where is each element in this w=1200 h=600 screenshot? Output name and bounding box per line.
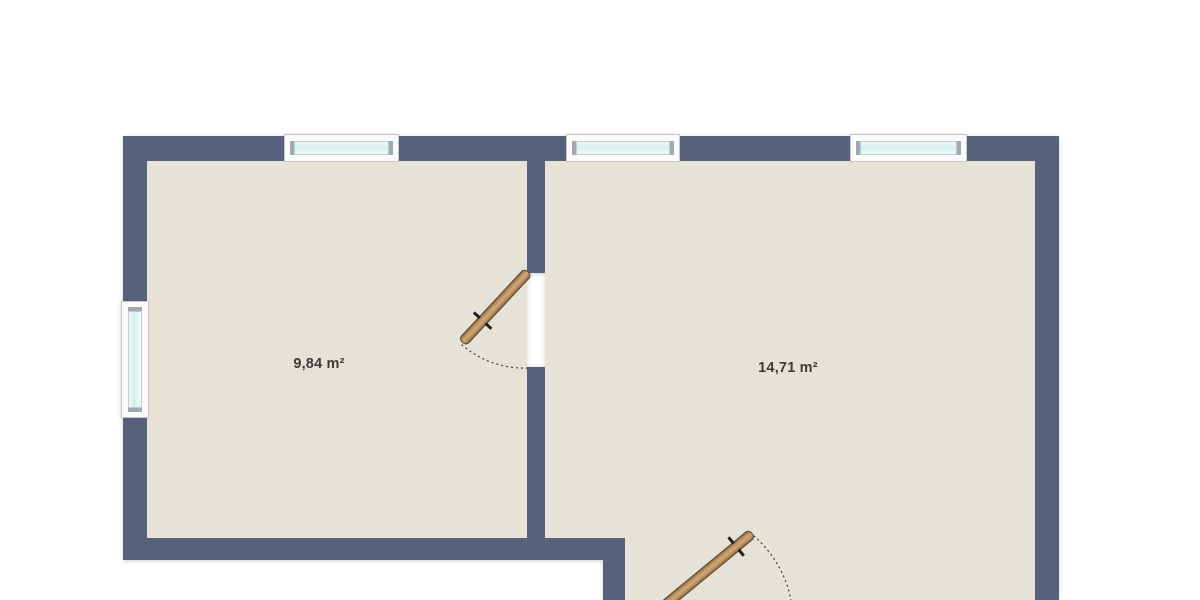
window-end-cap: [389, 141, 393, 155]
window-end-cap: [957, 141, 961, 155]
floorplan-canvas: 9,84 m² 14,71 m²: [0, 0, 1200, 600]
wall-interior-upper: [527, 161, 545, 273]
room-right-area-label: 14,71 m²: [718, 360, 858, 376]
window-left: [121, 301, 149, 418]
floorplan: 9,84 m² 14,71 m²: [0, 0, 1200, 600]
wall-interior-lower: [527, 367, 545, 538]
window-pane: [128, 311, 142, 408]
wall-bottom: [123, 538, 625, 560]
window-glass: [856, 141, 961, 155]
window-pane: [860, 141, 957, 155]
window-pane: [576, 141, 670, 155]
room-left-area-label: 9,84 m²: [249, 356, 389, 372]
window-glass: [572, 141, 674, 155]
wall-step: [603, 560, 625, 600]
wall-left-upper: [123, 136, 147, 301]
room-left-floor: [147, 161, 527, 538]
room-right-floor-extension: [625, 560, 1035, 600]
window-end-cap: [670, 141, 674, 155]
window-pane: [294, 141, 389, 155]
window-top-right: [850, 134, 967, 162]
window-top-middle: [566, 134, 680, 162]
window-end-cap: [128, 408, 142, 412]
wall-right: [1035, 136, 1059, 600]
window-top-left: [284, 134, 399, 162]
window-glass: [128, 307, 142, 412]
window-glass: [290, 141, 393, 155]
